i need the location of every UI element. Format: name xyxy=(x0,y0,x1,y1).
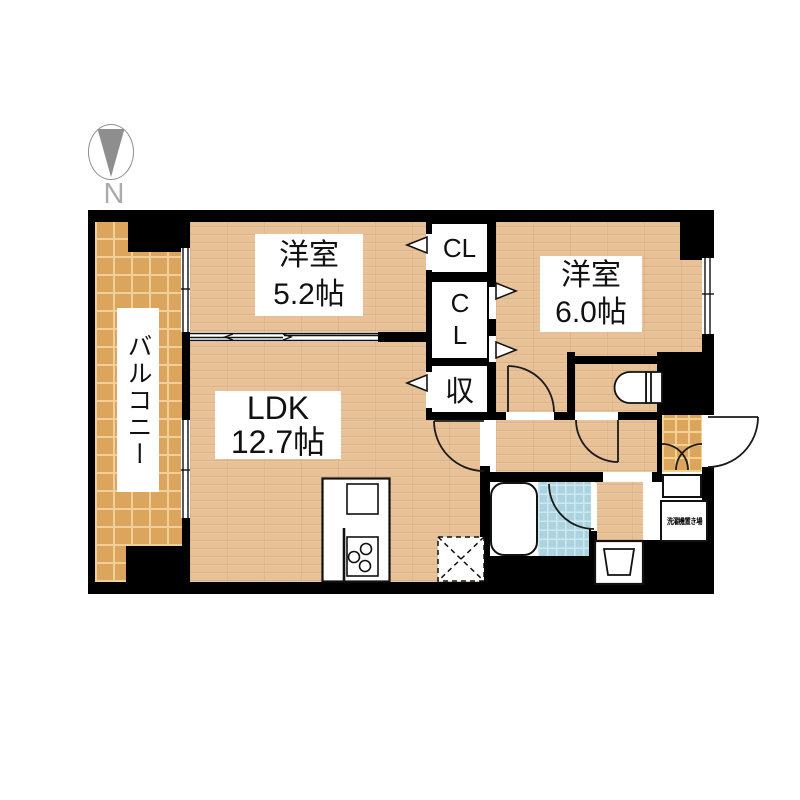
entrance-floor xyxy=(662,415,702,472)
wall-segment xyxy=(378,332,432,342)
bedroom1-label: 洋室 5.2帖 xyxy=(255,234,363,316)
wall-segment xyxy=(567,356,662,364)
balcony-label-text: バルコニー xyxy=(120,333,156,468)
closet-door-strip xyxy=(426,234,433,270)
refrigerator-label-text: 冷 xyxy=(451,545,471,574)
entrance-door-arc xyxy=(708,417,758,467)
washroom-opening xyxy=(603,472,652,482)
bedroom2-door-opening xyxy=(506,412,554,420)
bathroom-floor xyxy=(538,482,591,558)
wall-pillar xyxy=(126,546,182,594)
laundry-space-label: 洗濯機置き場 xyxy=(666,516,701,527)
washroom-floor xyxy=(595,482,643,542)
closet-2-label: CL xyxy=(444,288,475,352)
wall-shaft xyxy=(657,352,714,415)
wall-segment xyxy=(182,210,190,594)
ldk-size: 12.7帖 xyxy=(231,425,325,459)
wall-segment xyxy=(652,472,662,482)
bedroom1-name: 洋室 xyxy=(279,236,339,275)
storage-label: 収 xyxy=(445,368,474,410)
bathtub xyxy=(490,482,538,556)
wall-segment xyxy=(657,415,662,472)
entrance-storage xyxy=(662,474,702,498)
refrigerator-label: 冷 xyxy=(446,546,476,572)
wall-segment xyxy=(618,412,662,420)
ldk-label: LDK 12.7帖 xyxy=(215,391,341,459)
closet-door-strip xyxy=(426,372,433,408)
bedroom2-label: 洋室 6.0帖 xyxy=(540,256,642,332)
bedroom2-name: 洋室 xyxy=(561,257,621,294)
wall-segment xyxy=(567,352,575,420)
toilet-door-opening xyxy=(575,412,618,420)
bedroom2-floor-extension xyxy=(496,352,567,412)
laundry-space-box: 洗濯機置き場 xyxy=(660,500,708,542)
closet-1-box: CL xyxy=(432,224,487,272)
closet-door-strip xyxy=(489,287,496,319)
wall-pillar xyxy=(128,222,182,252)
floor-plan-canvas: N 洗濯機置き場 CL CL 収 xyxy=(0,0,800,800)
storage-box: 収 xyxy=(432,366,487,412)
ldk-name: LDK xyxy=(247,391,309,425)
compass-north-label: N xyxy=(99,178,129,210)
wall-segment xyxy=(88,210,95,594)
hallway-floor xyxy=(496,420,657,472)
wall-segment xyxy=(480,420,490,578)
balcony-label: バルコニー xyxy=(117,308,159,492)
wall-segment xyxy=(480,556,595,594)
wall-segment xyxy=(589,528,597,558)
closet-2-box: CL xyxy=(432,282,487,358)
closet-1-label: CL xyxy=(443,233,476,264)
bedroom1-size: 5.2帖 xyxy=(273,275,345,314)
toilet-floor xyxy=(575,364,662,412)
sliding-door xyxy=(190,332,378,342)
wall-segment xyxy=(480,472,603,482)
bedroom2-size: 6.0帖 xyxy=(555,294,627,331)
washbasin-icon xyxy=(595,541,643,584)
wall-segment xyxy=(643,540,714,594)
wall-pillar xyxy=(680,222,714,260)
closet-door-strip xyxy=(489,336,496,362)
wall-segment xyxy=(426,412,507,420)
